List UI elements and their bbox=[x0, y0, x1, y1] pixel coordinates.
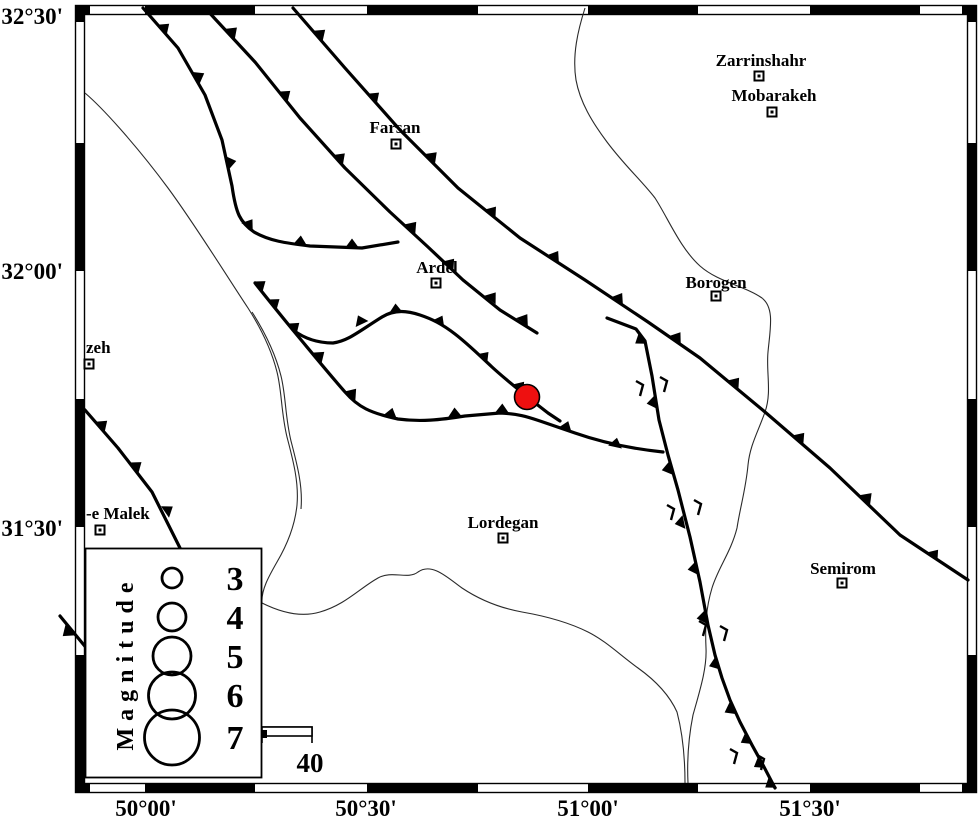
city-marker bbox=[712, 292, 721, 301]
x-tick-label: 51°00' bbox=[557, 796, 619, 821]
city-marker bbox=[755, 72, 764, 81]
x-tick-label: 51°30' bbox=[779, 796, 841, 821]
city-label: Farsan bbox=[370, 118, 422, 137]
map-canvas: 32°30' 32°00' 31°30' 50°00' 50°30' 51°00… bbox=[0, 0, 978, 824]
x-tick-label: 50°00' bbox=[115, 796, 177, 821]
city-marker bbox=[432, 279, 441, 288]
legend-value: 4 bbox=[227, 600, 244, 637]
scale-bar-label: 40 bbox=[297, 748, 324, 778]
city-label: Borogen bbox=[685, 273, 747, 292]
magnitude-legend: Magnitude 3 4 5 6 7 bbox=[86, 549, 262, 778]
city-label: Lordegan bbox=[468, 513, 539, 532]
city-marker bbox=[838, 579, 847, 588]
city-label: -e Malek bbox=[86, 504, 150, 523]
city-marker bbox=[85, 360, 94, 369]
legend-value: 3 bbox=[227, 561, 244, 598]
city-label: zeh bbox=[86, 338, 111, 357]
x-tick-label: 50°30' bbox=[335, 796, 397, 821]
legend-title: Magnitude bbox=[113, 575, 139, 750]
city-marker bbox=[768, 108, 777, 117]
y-tick-label: 32°00' bbox=[1, 259, 63, 284]
y-tick-label: 31°30' bbox=[1, 516, 63, 541]
city-marker bbox=[96, 526, 105, 535]
legend-value: 6 bbox=[227, 678, 244, 715]
city-label: Zarrinshahr bbox=[716, 51, 807, 70]
epicenter-dot bbox=[515, 385, 540, 410]
legend-value: 7 bbox=[227, 720, 244, 757]
city-marker bbox=[499, 534, 508, 543]
legend-value: 5 bbox=[227, 639, 244, 676]
city-marker bbox=[392, 140, 401, 149]
seismic-map: 32°30' 32°00' 31°30' 50°00' 50°30' 51°00… bbox=[0, 0, 978, 824]
y-tick-label: 32°30' bbox=[1, 4, 63, 29]
city-label: Mobarakeh bbox=[732, 86, 818, 105]
city-label: Semirom bbox=[810, 559, 876, 578]
